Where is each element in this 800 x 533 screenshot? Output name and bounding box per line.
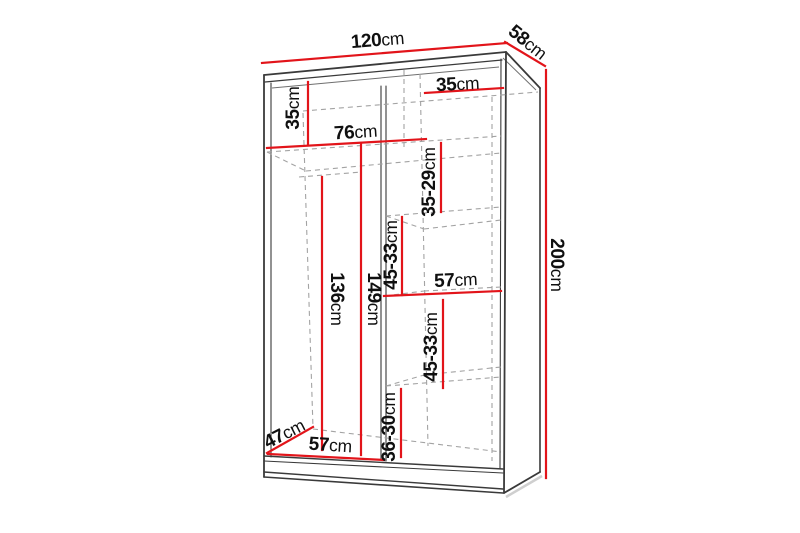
top-shelf-left-depth-edge xyxy=(267,152,306,171)
plinth-bottom-edge xyxy=(264,477,503,493)
dim-label-right-top-width: 35cm xyxy=(436,73,480,96)
dim-label-floor-depth: 47cm xyxy=(260,415,308,453)
dim-label-overall-height: 200cm xyxy=(546,238,567,291)
dim-label-left-height-2: 149cm xyxy=(363,272,384,325)
side-bottom-edge xyxy=(504,472,540,493)
partition-back-edge xyxy=(420,74,428,446)
dim-label-left-height-1: 136cm xyxy=(326,272,347,325)
dim-label-right-gap-3: 45-33cm xyxy=(421,312,442,382)
dim-label-left-width: 76cm xyxy=(333,121,377,145)
top-shelf-back-edge xyxy=(306,153,501,171)
top-right-depth-edge-inner xyxy=(503,58,536,90)
front-right-edge xyxy=(504,52,506,493)
floor-shadow xyxy=(506,476,542,497)
dim-label-top-shelf-drop: 35cm xyxy=(283,86,304,129)
shelf1-front-edge xyxy=(386,207,501,216)
plinth-top-edge xyxy=(264,472,503,489)
dim-label-right-gap-4: 36-30cm xyxy=(379,392,400,462)
dimension-labels: 120cm 58cm 200cm 35cm 35cm 76cm 35-29cm … xyxy=(260,21,567,462)
dim-label-overall-width: 120cm xyxy=(350,28,405,53)
dim-label-floor-width: 57cm xyxy=(308,434,352,458)
dim-label-mid-shelf-width: 57cm xyxy=(434,269,478,292)
dim-label-right-gap-1: 35-29cm xyxy=(419,147,440,217)
wardrobe-dimension-diagram: 120cm 58cm 200cm 35cm 35cm 76cm 35-29cm … xyxy=(0,0,800,533)
diagram-canvas: 120cm 58cm 200cm 35cm 35cm 76cm 35-29cm … xyxy=(0,0,800,533)
front-right-edge-inner xyxy=(500,59,501,469)
shelf1-back-edge xyxy=(424,220,501,229)
back-left-corner-edge xyxy=(303,113,313,428)
top-shelf-front-edge xyxy=(267,136,501,152)
hanging-rod xyxy=(299,172,362,177)
